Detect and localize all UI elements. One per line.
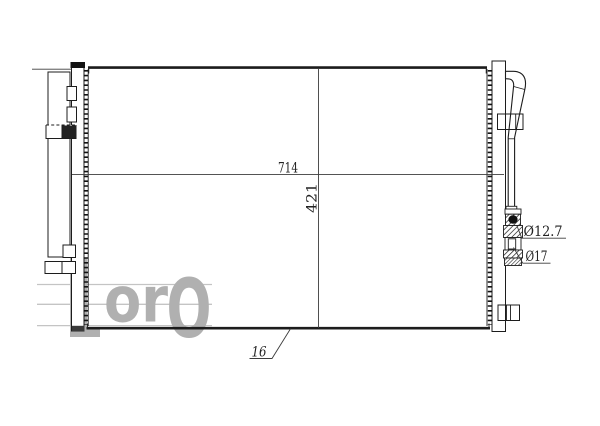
left-clamp-upper [67, 87, 77, 101]
right-header-tank [490, 61, 506, 332]
left-tank-top-cap [71, 62, 86, 68]
left-mount-bracket-bottom [45, 262, 76, 274]
right-tank-body [492, 61, 506, 332]
width-dimension-label: 714 [278, 161, 298, 177]
left-mount-bracket-mid-dark-cell [63, 126, 77, 139]
watermark-letter-o: O [167, 263, 212, 357]
fitting-valve-core [508, 215, 517, 223]
outlet-pipe [506, 71, 526, 210]
left-tank-bottom-cap [72, 326, 85, 331]
fitting-lower-nut [504, 250, 523, 258]
watermark-letters-or: or [104, 264, 168, 337]
drier-bottom-connector [63, 245, 76, 258]
depth-dimension-label: 16 [252, 345, 267, 361]
left-tank-body [72, 63, 85, 332]
drawing-canvas: L or O [0, 0, 600, 426]
fitting-upper-nut [504, 226, 523, 238]
fitting-cap [505, 209, 521, 214]
fitting-port [508, 239, 515, 249]
fitting-small-diameter-label: Ø12.7 [524, 224, 563, 240]
fitting-large-diameter-label: Ø17 [526, 249, 548, 265]
left-header-tank [71, 62, 86, 331]
height-dimension-label: 421 [305, 183, 321, 213]
pipe-outline [506, 71, 526, 209]
fitting-base [505, 258, 522, 266]
left-clamp-lower [67, 107, 77, 122]
condenser-technical-drawing: L or O [0, 0, 600, 426]
